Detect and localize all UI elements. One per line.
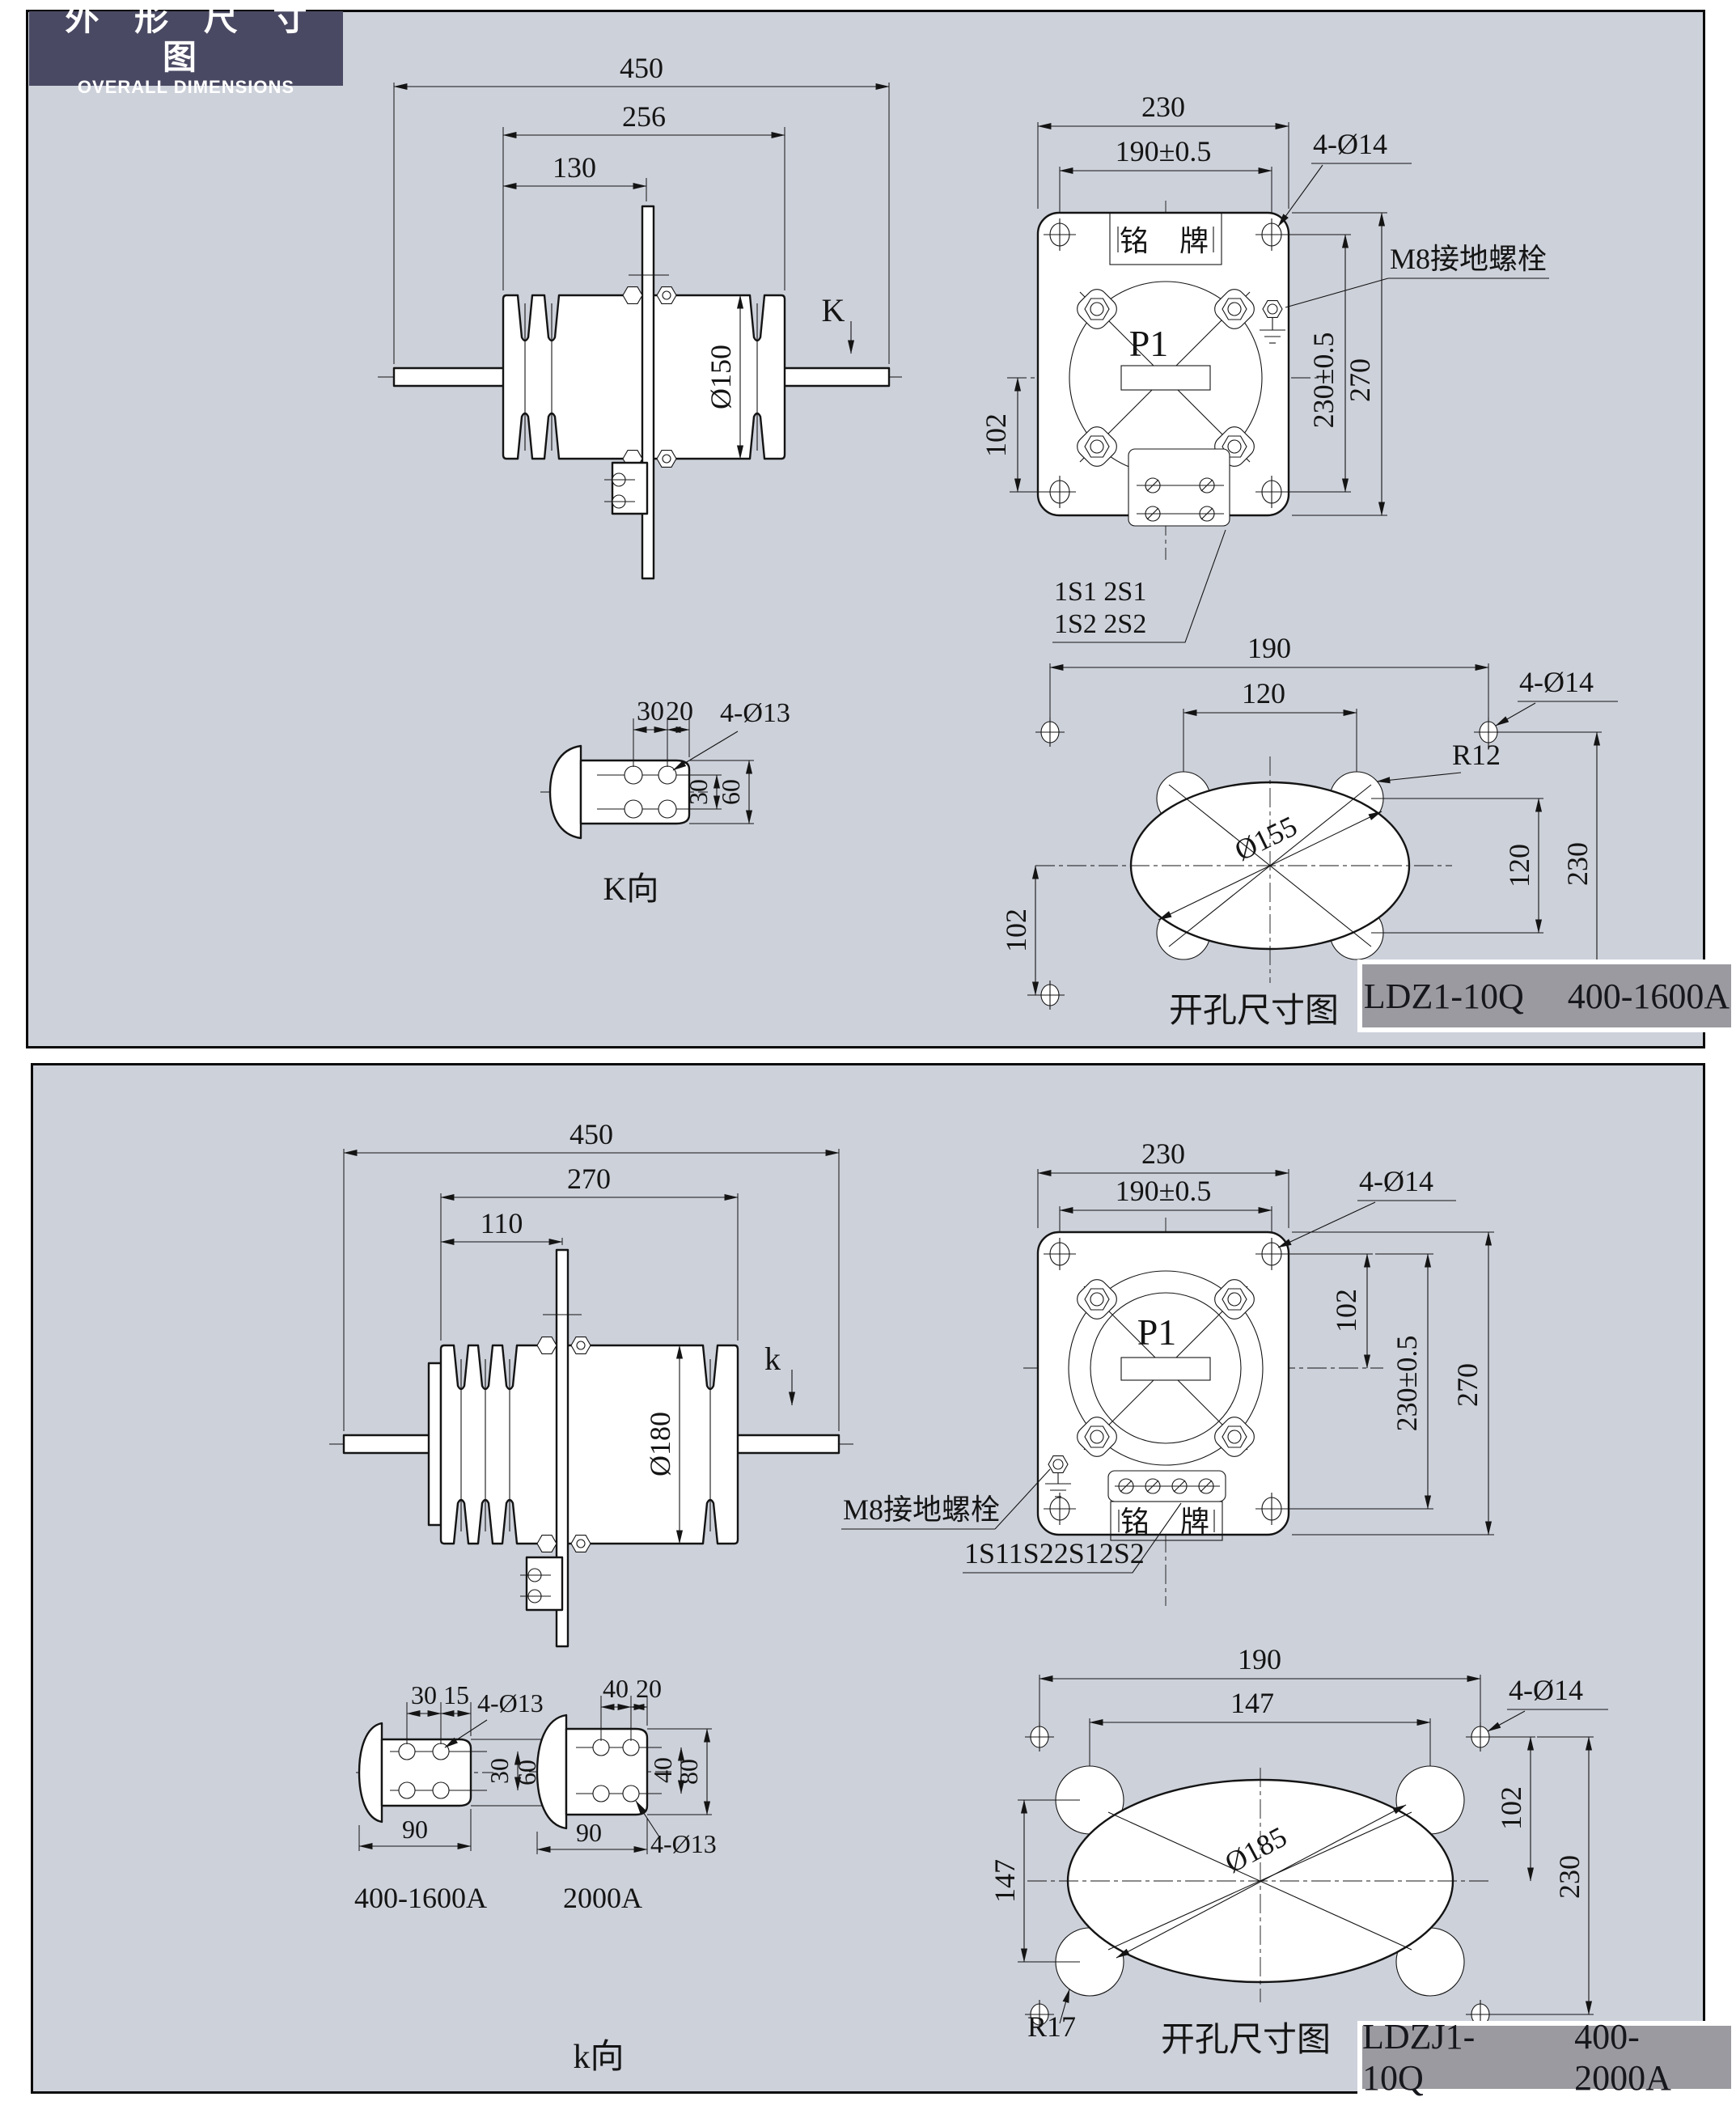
secondary-terminal-block	[1128, 449, 1230, 526]
dim-center-to-holes: 102	[980, 413, 1012, 457]
dim-hole-pitch-v: 30	[684, 779, 713, 805]
k-view-group-caption: k向	[534, 2029, 663, 2078]
terminal-pad	[382, 1739, 471, 1806]
dim-insulator-length: 270	[567, 1163, 611, 1195]
page-title-en: OVERALL DIMENSIONS	[29, 77, 343, 98]
dim-center-to-holes: 102	[1000, 909, 1032, 952]
nameplate-label: 铭牌	[1120, 225, 1239, 257]
model-name: LDZJ1-10Q	[1362, 2016, 1531, 2099]
dim-flange-height: 270	[1344, 358, 1376, 402]
secondary-terminals-label: 1S11S22S12S2	[964, 1537, 1145, 1569]
ldzj1-flange-view-drawing: 230 190±0.5 4-Ø14 P1 M8接地螺栓	[841, 1149, 1736, 1650]
dim-pad-length: 90	[576, 1818, 602, 1847]
primary-terminal-label: P1	[1137, 1311, 1177, 1353]
mounting-holes-label: 4-Ø14	[1509, 1674, 1583, 1706]
title-block: 外 形 尺 寸 图 OVERALL DIMENSIONS	[29, 11, 343, 86]
ground-bolt-label: M8接地螺栓	[843, 1493, 1000, 1526]
dim-hole-edge: 15	[443, 1680, 469, 1709]
nameplate-label: 铭牌	[1120, 1506, 1240, 1538]
secondary-terminals-row1: 1S1 2S1	[1054, 577, 1146, 607]
dim-hole-spacing-v: 230±0.5	[1307, 333, 1340, 429]
dim-body-diameter: Ø180	[644, 1412, 676, 1476]
dim-hole-edge: 20	[666, 697, 693, 726]
dim-hole-spacing-h: 190	[1247, 632, 1291, 664]
conductor-end-cap	[359, 1723, 382, 1822]
ground-bolt-label: M8接地螺栓	[1390, 243, 1547, 275]
view-direction-label: K	[822, 292, 845, 328]
holes-label: 4-Ø13	[650, 1829, 717, 1858]
model-label-box-ldz1: LDZ1-10Q 400-1600A	[1357, 959, 1736, 1032]
dim-total-length: 450	[569, 1118, 613, 1150]
primary-bar-slot	[1121, 1358, 1210, 1380]
ldz1-side-view-drawing: 450 256 130 Ø150 K	[368, 61, 918, 603]
dim-hole-spacing-v: 230	[1561, 842, 1594, 886]
model-name: LDZ1-10Q	[1364, 976, 1524, 1017]
holes-label: 4-Ø13	[720, 698, 790, 728]
page-title-cn: 外 形 尺 寸 图	[29, 0, 343, 77]
dim-flange-width: 230	[1141, 91, 1185, 123]
dim-total-length: 450	[620, 52, 663, 84]
ldz1-flange-view-drawing: 230 190±0.5 4-Ø14 铭牌 P1 M8接地螺栓	[983, 89, 1736, 655]
lobe-radius-label: R12	[1452, 739, 1501, 771]
lobe-radius-label: R17	[1027, 2010, 1076, 2043]
dim-lobe-spacing-v: 120	[1503, 844, 1535, 887]
conductor-end-cap	[550, 746, 581, 838]
dim-hole-pitch-h: 40	[603, 1674, 629, 1703]
dim-hole-spacing: 190±0.5	[1116, 135, 1212, 167]
dim-hole-spacing: 190±0.5	[1116, 1175, 1212, 1207]
dim-lobe-spacing-h: 147	[1230, 1687, 1274, 1719]
dim-flange-height: 270	[1451, 1363, 1484, 1407]
dim-center-to-holes: 102	[1495, 1786, 1527, 1830]
dim-hole-edge: 20	[636, 1674, 662, 1703]
mounting-holes-label: 4-Ø14	[1519, 666, 1594, 698]
ldzj1-k-view-2000-drawing: 40 20 40 80 90 4-Ø13 2000A	[518, 1667, 720, 1934]
dim-plate-offset: 130	[553, 151, 596, 184]
dim-lobe-spacing-v: 147	[989, 1859, 1021, 1903]
mounting-holes-label: 4-Ø14	[1359, 1165, 1433, 1197]
dim-pad-length: 90	[402, 1815, 428, 1844]
secondary-terminal-bracket	[604, 463, 647, 514]
secondary-terminal-strip	[1108, 1471, 1226, 1502]
ldz1-k-view-drawing: 30 20 4-Ø13 30 60 K向	[534, 696, 801, 930]
dim-pad-width: 80	[674, 1759, 703, 1785]
dim-hole-pitch-h: 30	[637, 697, 664, 726]
view-direction-label: k	[764, 1341, 781, 1377]
cutout-view-caption: 开孔尺寸图	[1169, 993, 1339, 1030]
dim-pad-width: 60	[716, 779, 745, 805]
dim-lobe-spacing-h: 120	[1242, 677, 1285, 710]
model-label-box-ldzj1: LDZJ1-10Q 400-2000A	[1357, 2021, 1736, 2094]
dim-plate-offset: 110	[481, 1207, 523, 1239]
dim-hole-pitch-v: 40	[648, 1757, 677, 1783]
dim-hole-pitch-v: 30	[485, 1758, 514, 1784]
secondary-terminal-bracket	[520, 1557, 562, 1610]
dim-insulator-length: 256	[622, 100, 666, 133]
k-view-caption-2000: 2000A	[563, 1882, 642, 1914]
ldzj1-side-view-drawing: 450 270 110 Ø180 k	[320, 1120, 870, 1679]
dim-center-to-holes: 102	[1330, 1289, 1362, 1332]
dim-hole-spacing-h: 190	[1238, 1643, 1281, 1675]
mounting-holes-label: 4-Ø14	[1313, 128, 1387, 160]
primary-bar-slot	[1121, 366, 1210, 390]
k-view-caption: K向	[603, 870, 659, 907]
dim-body-diameter: Ø150	[705, 345, 737, 409]
dim-hole-spacing-v: 230±0.5	[1391, 1336, 1423, 1432]
primary-terminal-label: P1	[1129, 323, 1169, 364]
dim-hole-spacing-v: 230	[1553, 1855, 1586, 1899]
conductor-end-cap	[537, 1715, 566, 1828]
current-range: 400-2000A	[1574, 2016, 1731, 2099]
current-range: 400-1600A	[1568, 976, 1730, 1017]
nameplate-box: 铭牌	[1111, 1502, 1240, 1540]
dim-flange-width: 230	[1141, 1137, 1185, 1170]
k-view-caption-400-1600: 400-1600A	[354, 1882, 487, 1914]
dim-hole-pitch-h: 30	[411, 1680, 437, 1709]
cutout-view-caption: 开孔尺寸图	[1161, 2022, 1331, 2059]
insulator-body	[429, 1345, 738, 1544]
